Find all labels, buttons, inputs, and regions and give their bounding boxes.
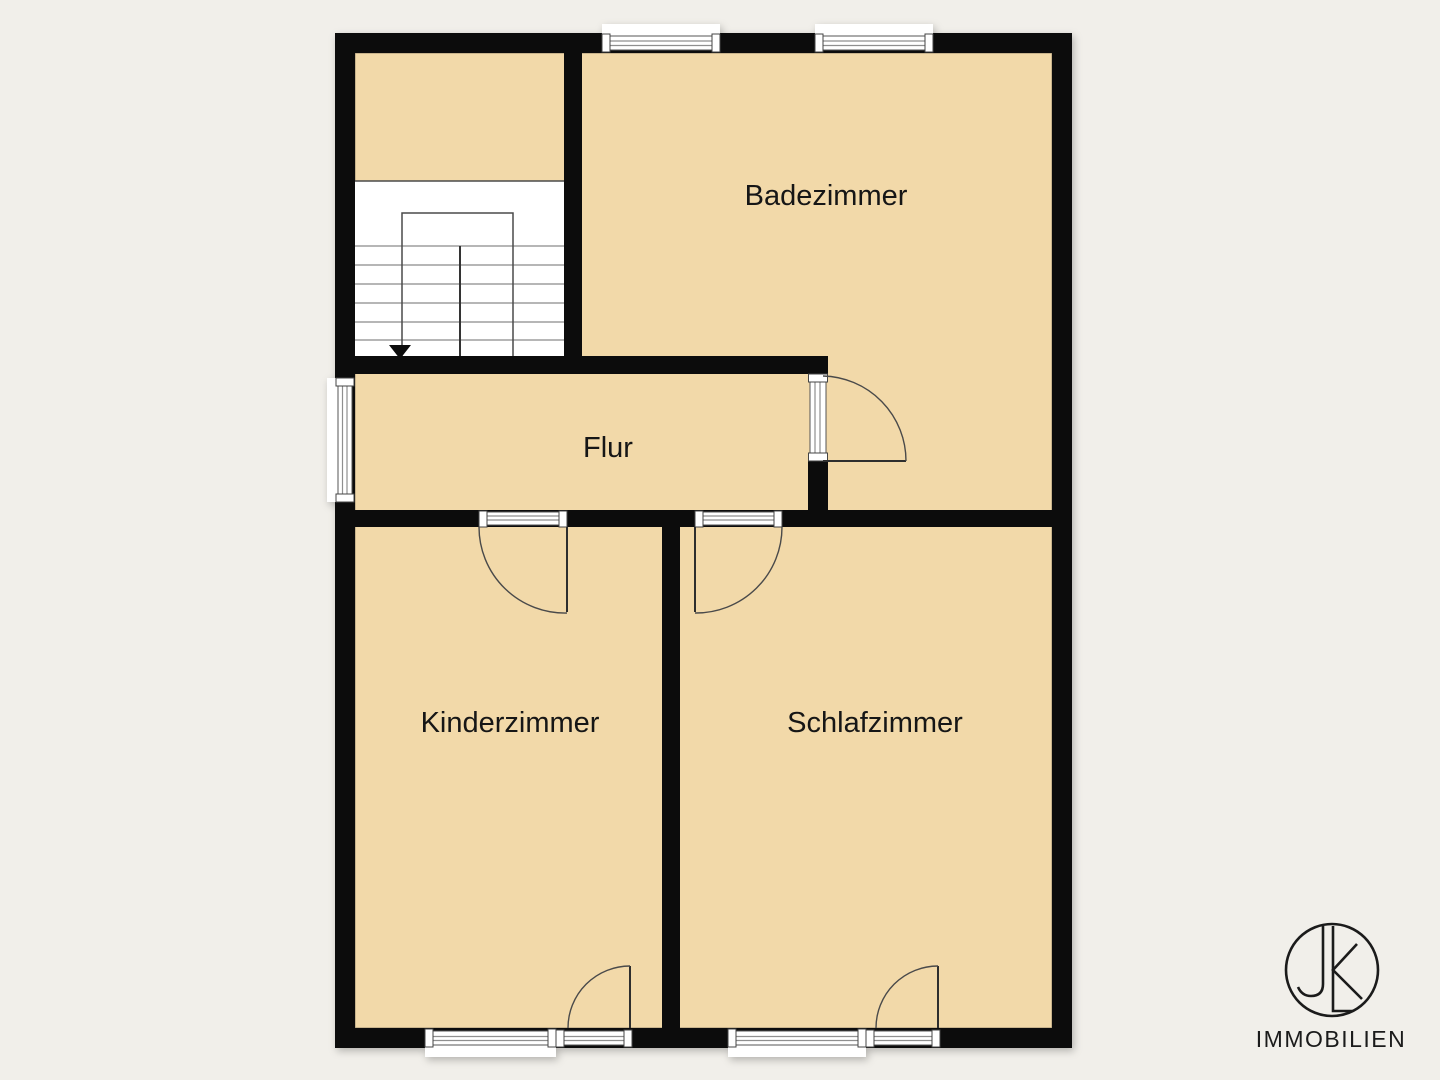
room-label-kinderzimmer: Kinderzimmer — [421, 707, 600, 739]
window-cap — [336, 494, 354, 502]
room-label-schlafzimmer: Schlafzimmer — [787, 707, 963, 739]
door-cap — [624, 1030, 632, 1047]
window-schlafzimmer — [728, 1029, 866, 1057]
door-cap — [866, 1030, 874, 1047]
window-sill — [327, 378, 339, 502]
door-frame — [866, 1031, 940, 1045]
door-cap — [695, 511, 703, 527]
window-sill — [425, 1045, 556, 1057]
window-cap — [858, 1029, 866, 1047]
door-cap — [932, 1030, 940, 1047]
window-cap — [728, 1029, 736, 1047]
door-frame — [556, 1031, 632, 1045]
floorplan-page: Badezimmer Flur Kinderzimmer Schlafzimme… — [0, 0, 1440, 1080]
window-frame — [602, 36, 720, 50]
logo-letter-k-arms — [1333, 944, 1362, 999]
window-frame — [338, 378, 352, 502]
wall-kinder-schlaf-divider — [662, 527, 680, 1028]
window-frame — [425, 1031, 556, 1045]
window-cap — [336, 378, 354, 386]
door-cap — [559, 511, 567, 527]
floor-plan: Badezimmer Flur Kinderzimmer Schlafzimme… — [0, 0, 1440, 1080]
door-frame — [695, 512, 782, 525]
door-cap — [556, 1030, 564, 1047]
window-sill — [602, 24, 720, 36]
wall-right — [1052, 33, 1072, 1048]
door-frame — [810, 374, 826, 461]
logo-text: IMMOBILIEN — [1256, 1026, 1406, 1052]
door-cap — [479, 511, 487, 527]
room-label-badezimmer: Badezimmer — [745, 180, 908, 212]
wall-flur-north — [335, 356, 828, 374]
window-frame — [815, 36, 933, 50]
window-cap — [548, 1029, 556, 1047]
window-cap — [602, 34, 610, 52]
wall-stair-bad-divider — [564, 53, 582, 374]
door-cap — [809, 453, 828, 461]
door-cap — [809, 374, 828, 382]
logo-monogram-jk-icon — [1298, 926, 1362, 1011]
company-logo: IMMOBILIEN — [1256, 924, 1406, 1052]
window-sill — [815, 24, 933, 36]
window-cap — [712, 34, 720, 52]
window-badezimmer-1 — [602, 24, 720, 52]
door-cap — [774, 511, 782, 527]
door-frame — [479, 512, 567, 525]
window-badezimmer-2 — [815, 24, 933, 52]
window-frame — [728, 1031, 866, 1045]
window-cap — [815, 34, 823, 52]
window-cap — [925, 34, 933, 52]
window-kinderzimmer — [425, 1029, 556, 1057]
wall-left — [335, 33, 355, 1048]
window-flur — [327, 378, 354, 502]
window-sill — [728, 1045, 866, 1057]
window-cap — [425, 1029, 433, 1047]
room-label-flur: Flur — [583, 432, 633, 464]
floor-plan-drawing: Badezimmer Flur Kinderzimmer Schlafzimme… — [327, 24, 1072, 1057]
